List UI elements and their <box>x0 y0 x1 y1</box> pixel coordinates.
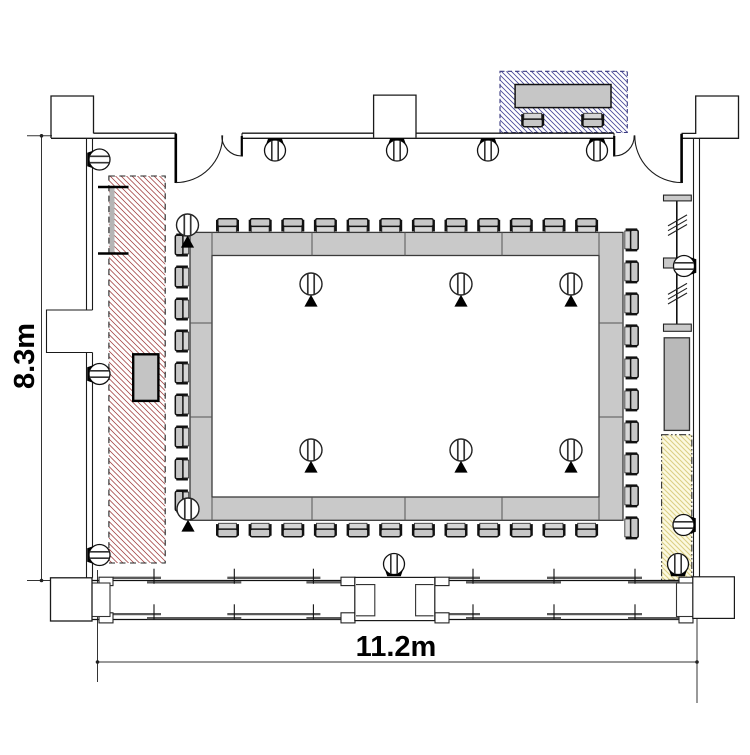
svg-text:11.2m: 11.2m <box>356 631 437 663</box>
svg-text:8.3m: 8.3m <box>9 323 41 389</box>
